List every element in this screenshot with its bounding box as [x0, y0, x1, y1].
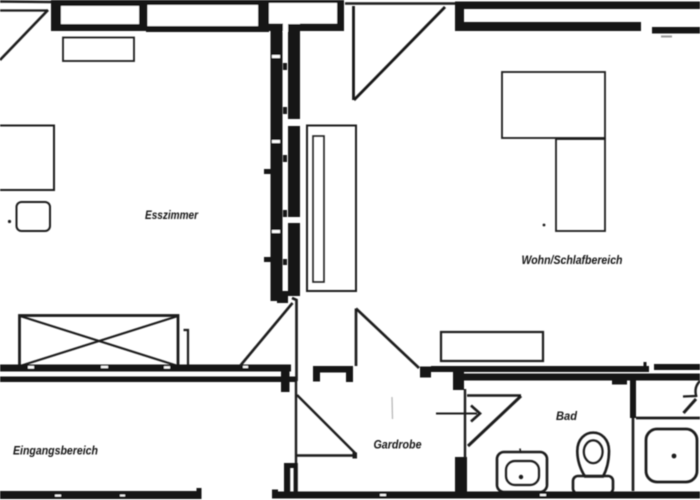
svg-text:Eingangsbereich: Eingangsbereich	[13, 446, 98, 458]
svg-text:Esszimmer: Esszimmer	[145, 210, 198, 222]
svg-text:Wohn/Schlafbereich: Wohn/Schlafbereich	[522, 255, 623, 267]
svg-text:Bad: Bad	[556, 411, 578, 423]
svg-text:Gardrobe: Gardrobe	[374, 440, 423, 452]
